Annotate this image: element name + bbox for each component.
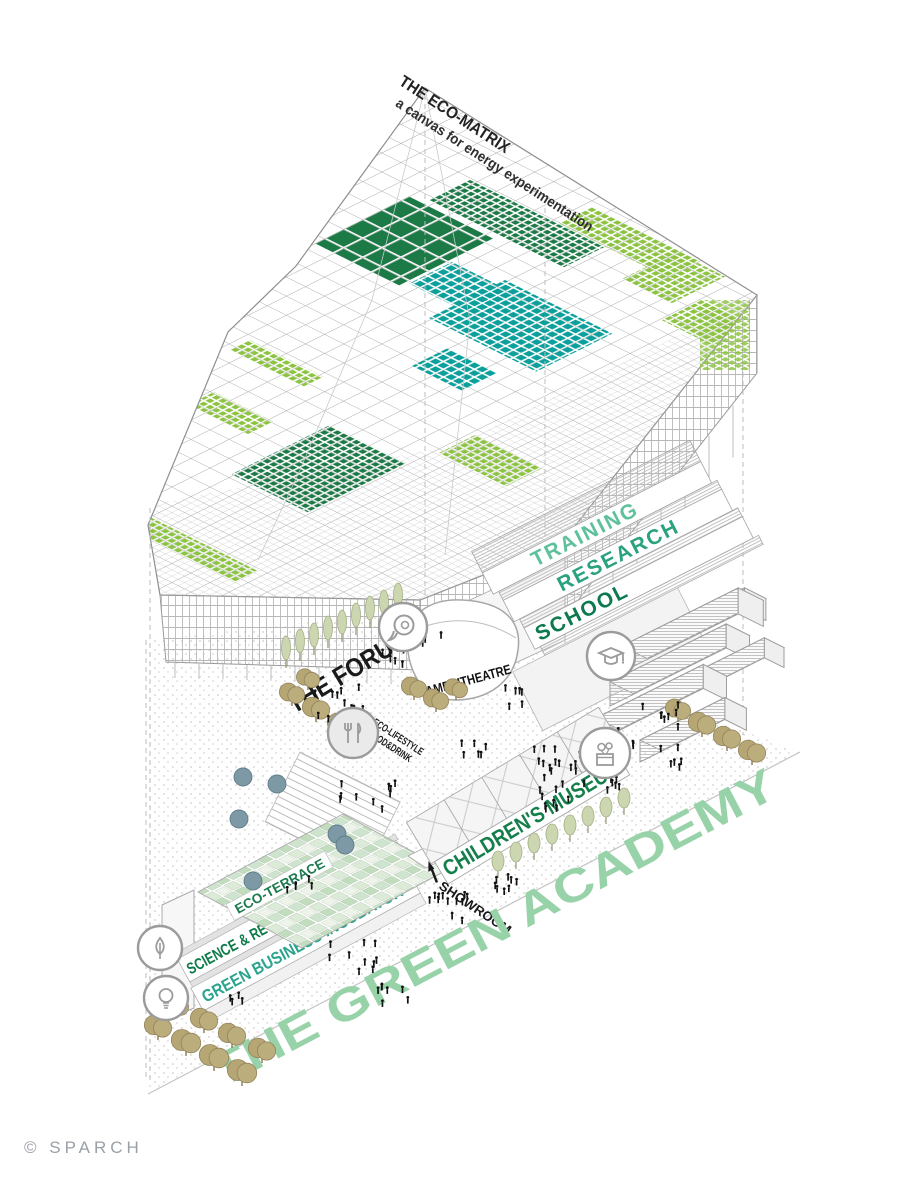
graduation-cap-icon — [587, 632, 635, 680]
lightbulb-icon — [144, 976, 188, 1020]
copyright-credit: © SPARCH — [24, 1138, 143, 1158]
site-diagram: THE ECO-MATRIX a canvas for energy exper… — [0, 0, 915, 1184]
food-icon — [328, 708, 378, 758]
speech-bubble-icon — [379, 603, 427, 651]
gift-icon — [580, 728, 630, 778]
plant-icon — [138, 926, 182, 970]
poster-canvas: THE ECO-MATRIX a canvas for energy exper… — [0, 0, 915, 1184]
